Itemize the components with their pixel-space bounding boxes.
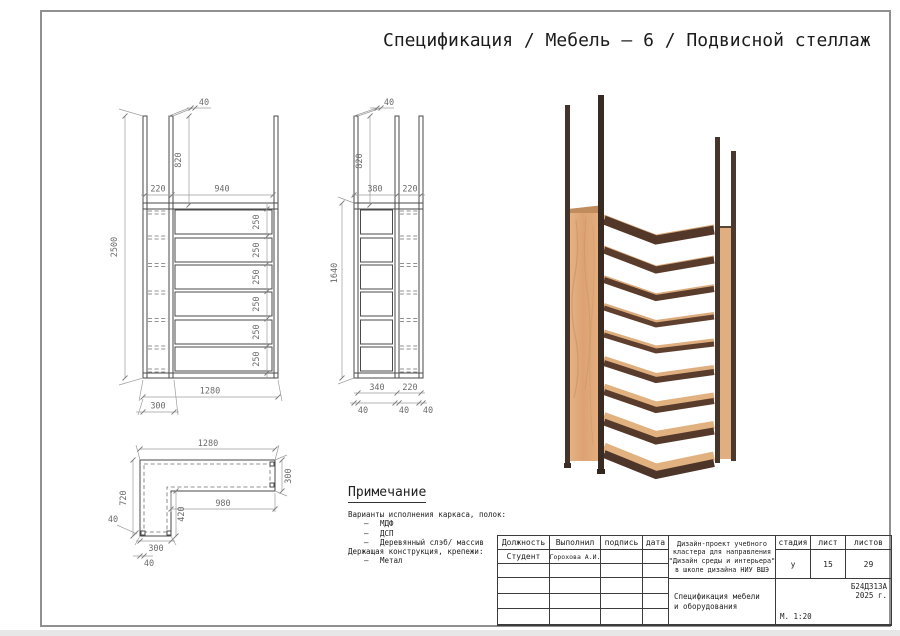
dim-front-right-section: 940	[214, 185, 229, 195]
tb-empty-cell	[601, 578, 643, 594]
tb-header-sheets: листов	[846, 536, 891, 550]
tb-stage-value: у	[776, 550, 811, 579]
tb-executor-name: Горохова А.И.	[550, 550, 601, 564]
dim-side-hang-height: 820	[355, 153, 365, 168]
tb-empty-cell	[643, 564, 669, 578]
dim-front-depth-offset: 300	[150, 402, 165, 412]
tb-empty-cell	[498, 594, 550, 609]
dim-front-shelf-gap-2: 250	[252, 242, 262, 257]
notes-intro-frame: Варианты исполнения каркаса, полок:	[348, 510, 578, 519]
notes-bullet-mdf: –МДФ	[348, 519, 578, 528]
dim-top-left-leg: 720	[119, 490, 129, 505]
dim-top-depth-right: 300	[284, 468, 294, 483]
notes-bullet-mdf-label: МДФ	[380, 519, 394, 528]
side-shelf-unit	[354, 203, 423, 378]
dim-side-post-width: 40	[384, 98, 394, 108]
tb-empty-cell	[643, 609, 669, 625]
render-back-posts	[715, 137, 736, 463]
tb-empty-cell	[550, 564, 601, 578]
dim-front-total-width: 1280	[200, 387, 220, 397]
dim-side-left-section: 380	[367, 185, 382, 195]
tb-header-position: Должность	[498, 536, 550, 550]
tb-project-cell: Дизайн-проект учебного кластера для напр…	[669, 536, 776, 579]
bullet-dash: –	[364, 529, 380, 538]
render-3d	[538, 85, 773, 490]
tb-project-line4: в школе дизайна НИУ ВШЭ	[675, 566, 769, 575]
tb-header-sheet: лист	[811, 536, 846, 550]
tb-project-line3: "Дизайн среды и интерьера"	[669, 557, 775, 566]
dim-side-post2: 40	[399, 406, 409, 416]
tb-sheet-value: 15	[811, 550, 846, 579]
front-dimensions: 40 820 220 940 2500 250 250 250 250 2	[110, 98, 282, 415]
drawing-sheet: Спецификация / Мебель – 6 / Подвисной ст…	[0, 0, 900, 636]
tb-year: 2025 г.	[855, 591, 887, 600]
dim-front-left-section: 220	[150, 185, 165, 195]
tb-empty-cell	[550, 578, 601, 594]
notes-bullet-slab-label: Деревянный слэб/ массив	[380, 538, 484, 547]
dim-front-shelf-gap-4: 250	[252, 296, 262, 311]
page-bottom-edge	[0, 630, 900, 636]
bullet-dash: –	[364, 538, 380, 547]
tb-sheets-value: 29	[846, 550, 891, 579]
dim-side-bottom-right: 220	[402, 383, 417, 393]
tb-doc-line2: и оборудования	[674, 602, 737, 612]
side-hidden-edges	[400, 211, 418, 372]
notes-bullet-metal-label: Метал	[380, 556, 403, 565]
tb-scale: М. 1:20	[780, 612, 812, 621]
dim-front-shelf-gap-5: 250	[252, 324, 262, 339]
dim-side-bottom-left: 340	[369, 383, 384, 393]
top-view-drawing: 1280 300 720 980 420 40 300 40	[103, 438, 318, 583]
bullet-dash: –	[364, 556, 380, 565]
tb-project-line1: Дизайн-проект учебного	[677, 540, 767, 549]
render-shelves	[604, 216, 714, 475]
tb-empty-cell	[601, 564, 643, 578]
dim-front-post-width: 40	[199, 98, 209, 108]
dim-side-unit-height: 1640	[330, 263, 340, 283]
tb-code-cell: Б24Д313А 2025 г. М. 1:20	[776, 579, 891, 625]
dim-top-thickness-left: 40	[108, 515, 118, 525]
tb-empty-cell	[498, 578, 550, 594]
tb-role: Студент	[498, 550, 550, 564]
tb-empty-cell	[643, 578, 669, 594]
tb-doc-code: Б24Д313А	[851, 582, 887, 591]
dim-top-inner-leg: 420	[177, 506, 187, 521]
top-outline	[140, 460, 275, 536]
top-dimensions: 1280 300 720 980 420 40 300 40	[108, 439, 294, 569]
tb-header-stage: стадия	[776, 536, 811, 550]
dim-side-post3: 40	[423, 406, 433, 416]
dim-front-shelf-gap-6: 250	[252, 351, 262, 366]
tb-date-cell	[643, 550, 669, 564]
bullet-dash: –	[364, 519, 380, 528]
dim-top-bottom-width: 300	[148, 544, 163, 554]
tb-empty-cell	[601, 609, 643, 625]
tb-header-signature: подпись	[601, 536, 643, 550]
dim-front-shelf-gap-3: 250	[252, 269, 262, 284]
dim-side-post1: 40	[358, 406, 368, 416]
tb-empty-cell	[550, 609, 601, 625]
dim-top-total-width: 1280	[198, 439, 218, 449]
tb-signature-cell	[601, 550, 643, 564]
front-view-drawing: 40 820 220 940 2500 250 250 250 250 2	[103, 95, 318, 430]
tb-empty-cell	[498, 564, 550, 578]
tb-header-date: дата	[643, 536, 669, 550]
tb-empty-cell	[643, 594, 669, 609]
notes-bullet-dsp-label: ДСП	[380, 529, 394, 538]
side-view-drawing: 40 820 380 220 1640 340 220 40 40 40	[332, 95, 462, 430]
dim-front-shelf-gap-1: 250	[252, 214, 262, 229]
dim-side-right-section: 220	[402, 185, 417, 195]
tb-empty-cell	[498, 609, 550, 625]
front-hidden-edges	[148, 211, 168, 372]
tb-project-line2: кластера для направления	[673, 548, 771, 557]
tb-empty-cell	[601, 594, 643, 609]
tb-empty-cell	[550, 594, 601, 609]
dim-top-post-width: 40	[144, 559, 154, 569]
tb-header-executor: Выполнил	[550, 536, 601, 550]
tb-doc-line1: Спецификация мебели	[674, 592, 760, 602]
notes-heading: Примечание	[348, 485, 426, 503]
dim-front-total-height: 2500	[110, 237, 120, 257]
dim-top-inner-width: 980	[215, 499, 230, 509]
dim-front-hang-height: 820	[174, 152, 184, 167]
tb-document-cell: Спецификация мебели и оборудования	[669, 579, 776, 625]
page-title: Спецификация / Мебель – 6 / Подвисной ст…	[383, 30, 871, 51]
title-block: Должность Выполнил подпись дата Студент …	[497, 535, 892, 626]
side-dimensions: 40 820 380 220 1640 340 220 40 40 40	[330, 98, 433, 416]
